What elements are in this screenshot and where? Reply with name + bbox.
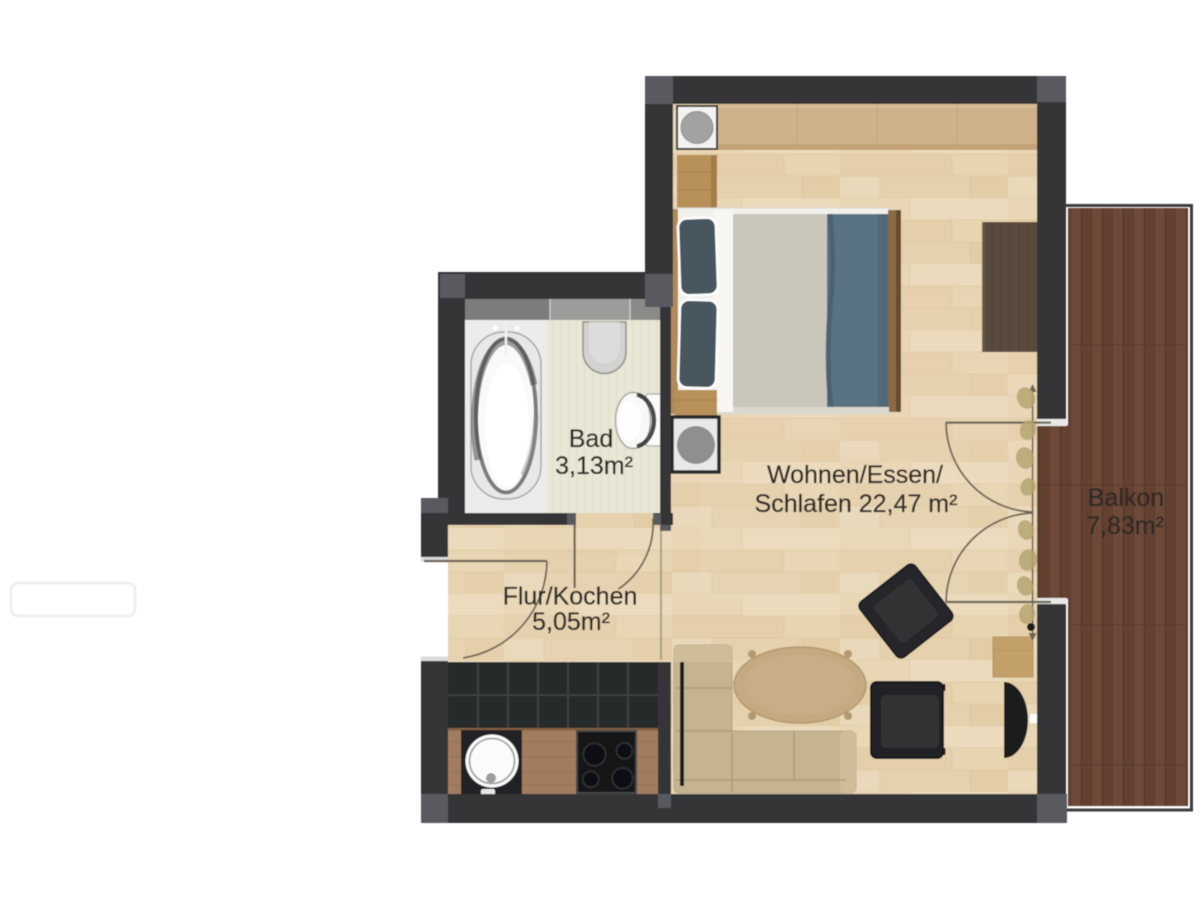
- svg-text:Balkon: Balkon: [1088, 484, 1164, 512]
- svg-text:Wohnen/Essen/: Wohnen/Essen/: [767, 461, 943, 489]
- svg-text:3,13m²: 3,13m²: [555, 452, 633, 480]
- svg-text:Bad: Bad: [569, 425, 613, 453]
- svg-text:Flur/Kochen: Flur/Kochen: [503, 583, 638, 611]
- svg-text:5,05m²: 5,05m²: [532, 608, 610, 636]
- svg-text:Schlafen 22,47 m²: Schlafen 22,47 m²: [755, 490, 958, 518]
- svg-text:7,83m²: 7,83m²: [1086, 512, 1164, 540]
